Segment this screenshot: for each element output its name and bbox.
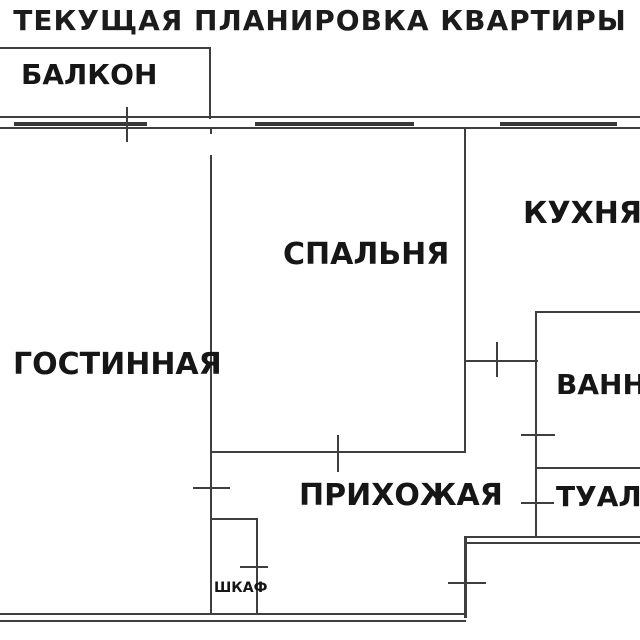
living-hallway-wall — [210, 453, 212, 615]
living-room-door-tick — [193, 487, 230, 489]
entry-right-wall — [464, 536, 467, 618]
bedroom-kitchen-wall — [464, 129, 466, 453]
balcony-right-wall — [209, 47, 211, 119]
room-label-bathroom: ВАННАЯ — [556, 371, 640, 399]
bathroom-top-wall — [535, 311, 640, 313]
entry-door-tick — [448, 582, 486, 584]
room-label-toilet: ТУАЛЕТ — [556, 483, 640, 511]
toilet-bottom-wall-inner-line — [464, 542, 640, 544]
bathroom-toilet-divider-wall — [537, 467, 640, 469]
floor-plan: ТЕКУЩАЯ ПЛАНИРОВКА КВАРТИРЫ БАЛКОНГОСТИН… — [0, 0, 640, 640]
balcony-top-wall — [0, 47, 211, 49]
bedroom-window — [255, 122, 414, 126]
bedroom-door-tick — [337, 435, 339, 472]
balcony-door-tick — [126, 107, 128, 142]
bathroom-door-tick — [521, 434, 555, 436]
room-label-closet: ШКАФ — [214, 581, 267, 595]
room-label-bedroom: СПАЛЬНЯ — [283, 240, 449, 270]
toilet-bottom-wall-outer-line — [464, 536, 640, 538]
closet-top-wall — [210, 518, 258, 520]
page-title: ТЕКУЩАЯ ПЛАНИРОВКА КВАРТИРЫ — [0, 4, 640, 37]
top-exterior-wall-outer-line — [0, 116, 640, 118]
kitchen-door-tick — [496, 342, 498, 377]
living-bedroom-wall-stub — [210, 129, 212, 134]
room-label-hallway: ПРИХОЖАЯ — [299, 481, 503, 511]
living-bedroom-wall — [210, 155, 212, 453]
closet-door-tick — [240, 566, 268, 568]
room-label-kitchen: КУХНЯ — [523, 199, 640, 229]
toilet-door-tick — [521, 502, 554, 504]
kitchen-window — [500, 122, 617, 126]
top-exterior-wall-inner-line — [0, 127, 640, 129]
kitchen-bottom-wall — [464, 360, 538, 362]
room-label-balcony: БАЛКОН — [21, 61, 157, 89]
bottom-exterior-wall-inner-line — [0, 620, 466, 622]
bottom-exterior-wall-outer-line — [0, 613, 467, 615]
room-label-living-room: ГОСТИННАЯ — [13, 350, 222, 380]
